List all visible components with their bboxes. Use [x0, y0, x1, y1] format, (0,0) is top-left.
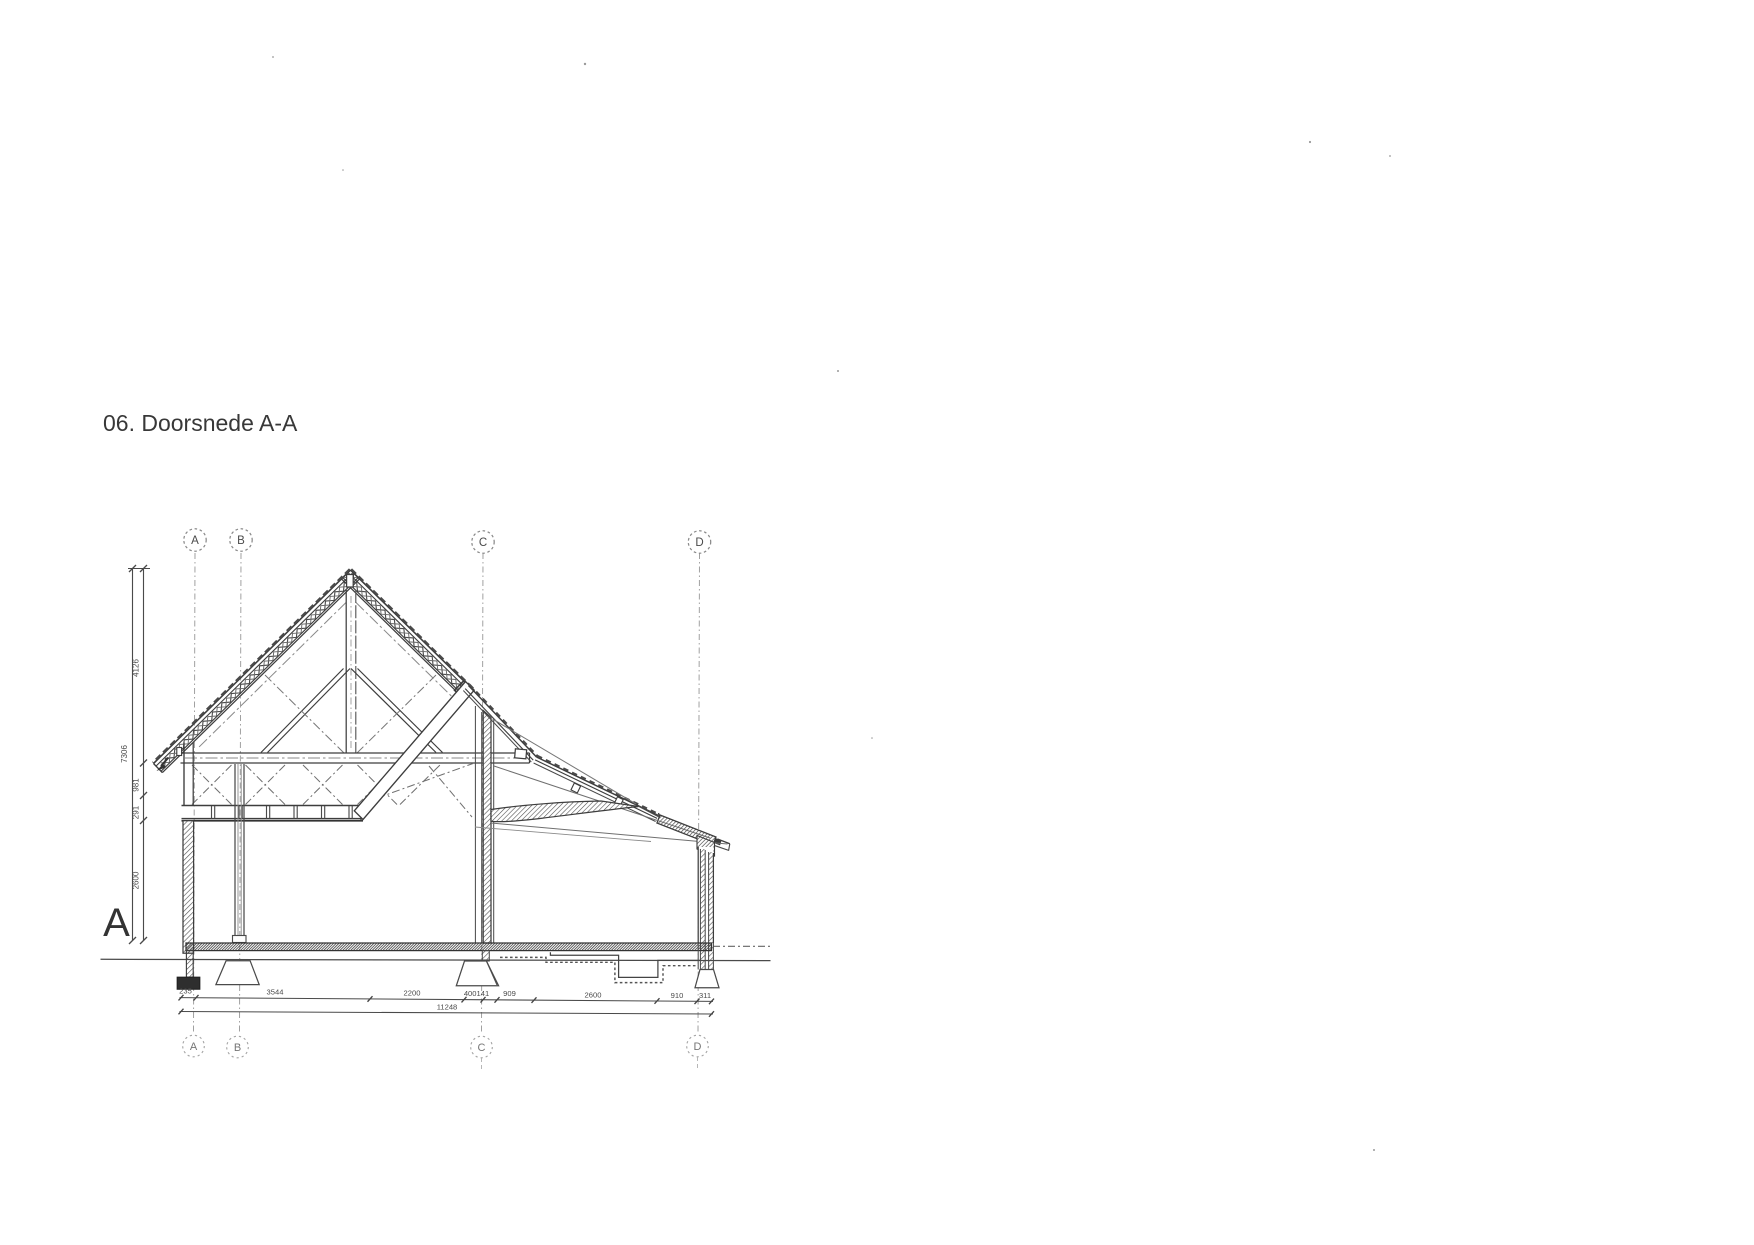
- svg-text:A: A: [191, 535, 199, 547]
- svg-text:D: D: [694, 1041, 702, 1053]
- svg-text:4126: 4126: [132, 659, 141, 677]
- svg-text:3544: 3544: [267, 988, 284, 997]
- svg-text:291: 291: [132, 805, 141, 819]
- svg-text:2600: 2600: [132, 871, 141, 889]
- svg-text:C: C: [479, 537, 487, 549]
- svg-text:A: A: [190, 1041, 198, 1053]
- svg-text:B: B: [237, 535, 245, 547]
- svg-text:B: B: [234, 1042, 241, 1054]
- svg-text:D: D: [695, 537, 703, 549]
- svg-text:910: 910: [671, 991, 684, 1000]
- svg-text:C: C: [478, 1042, 486, 1054]
- svg-text:981: 981: [132, 778, 141, 792]
- svg-text:235: 235: [179, 986, 192, 995]
- svg-text:A: A: [103, 901, 130, 945]
- svg-text:400141: 400141: [464, 989, 489, 998]
- svg-text:7306: 7306: [120, 745, 129, 763]
- svg-text:909: 909: [503, 989, 516, 998]
- svg-text:06. Doorsnede A-A: 06. Doorsnede A-A: [103, 410, 298, 436]
- svg-text:2200: 2200: [404, 989, 421, 998]
- svg-text:311: 311: [699, 991, 711, 1000]
- svg-text:2600: 2600: [585, 990, 602, 999]
- svg-text:11248: 11248: [437, 1003, 458, 1012]
